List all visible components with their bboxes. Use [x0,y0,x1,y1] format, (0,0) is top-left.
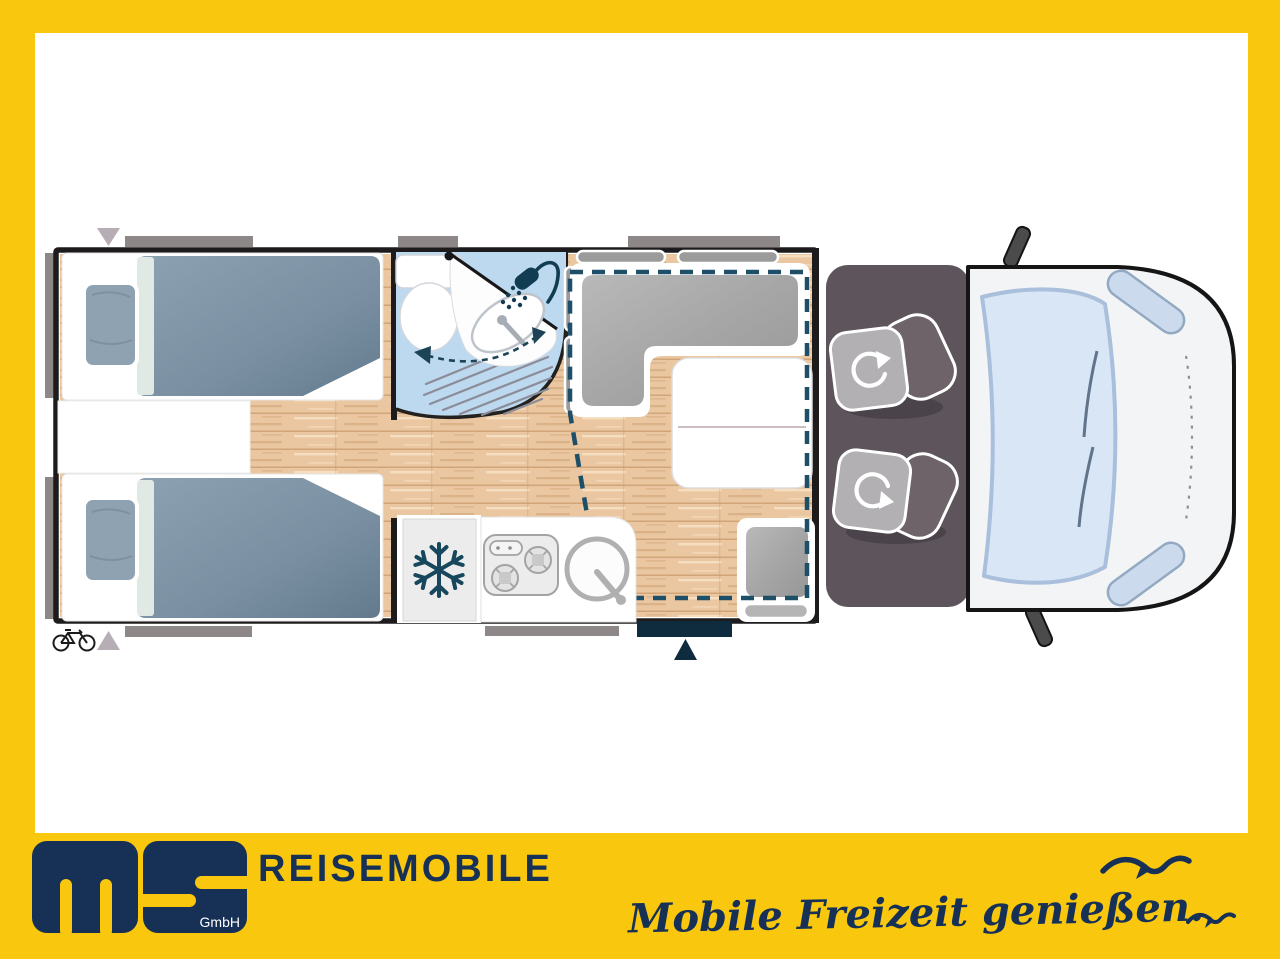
window-top-dinette [628,236,780,247]
bathroom [396,252,566,418]
cab-seat-passenger [832,447,965,546]
entrance-door [637,621,732,660]
footer-brand-band: GmbH REISEMOBILE Mobile Freizeit genieße… [0,833,1280,959]
kitchen [397,515,636,623]
mirror-top [1002,225,1032,269]
window-top-bathroom [398,236,458,247]
window-rear-upper [45,253,54,398]
company-wordmark: REISEMOBILE [258,848,553,891]
window-bottom-kitchen [485,626,619,636]
mattress [137,256,380,396]
bicycle-icon [54,630,95,651]
company-logo: GmbH [32,841,247,935]
bed-top [62,253,383,400]
logo-m-glyph [32,841,138,935]
duvet-fold [137,480,154,616]
bed-bottom [62,474,383,621]
seagull-icon [1186,910,1236,932]
window-top-bedroom [125,236,253,247]
entrance-arrow-icon [674,639,697,660]
seagull-icon [1100,853,1192,883]
logo-s-glyph: GmbH [143,841,247,933]
bed-divider-cabinet [58,401,250,473]
windshield [982,289,1116,582]
wall-kitchen-left [391,518,397,622]
ms-logo: GmbH [32,841,247,935]
hob-icon [484,535,558,595]
window-bottom-bedroom [125,626,252,637]
duvet-fold [137,257,154,395]
mattress [137,478,380,618]
pillow [84,498,137,582]
motorhome-floor-plan [0,0,1280,833]
dinette-table [672,358,812,488]
side-seat [737,518,815,622]
marker-triangle-bottom [97,631,120,650]
company-tagline: Mobile Freizeit genießen. [628,884,1159,942]
logo-gmbh-label: GmbH [200,914,240,930]
window-rear-lower [45,477,54,619]
fridge [397,515,481,623]
vehicle-front [968,225,1234,648]
dealer-advert-image: GmbH REISEMOBILE Mobile Freizeit genieße… [0,0,1280,959]
marker-triangle-top [97,228,120,246]
cab-floor [826,265,970,607]
cab [826,265,970,607]
